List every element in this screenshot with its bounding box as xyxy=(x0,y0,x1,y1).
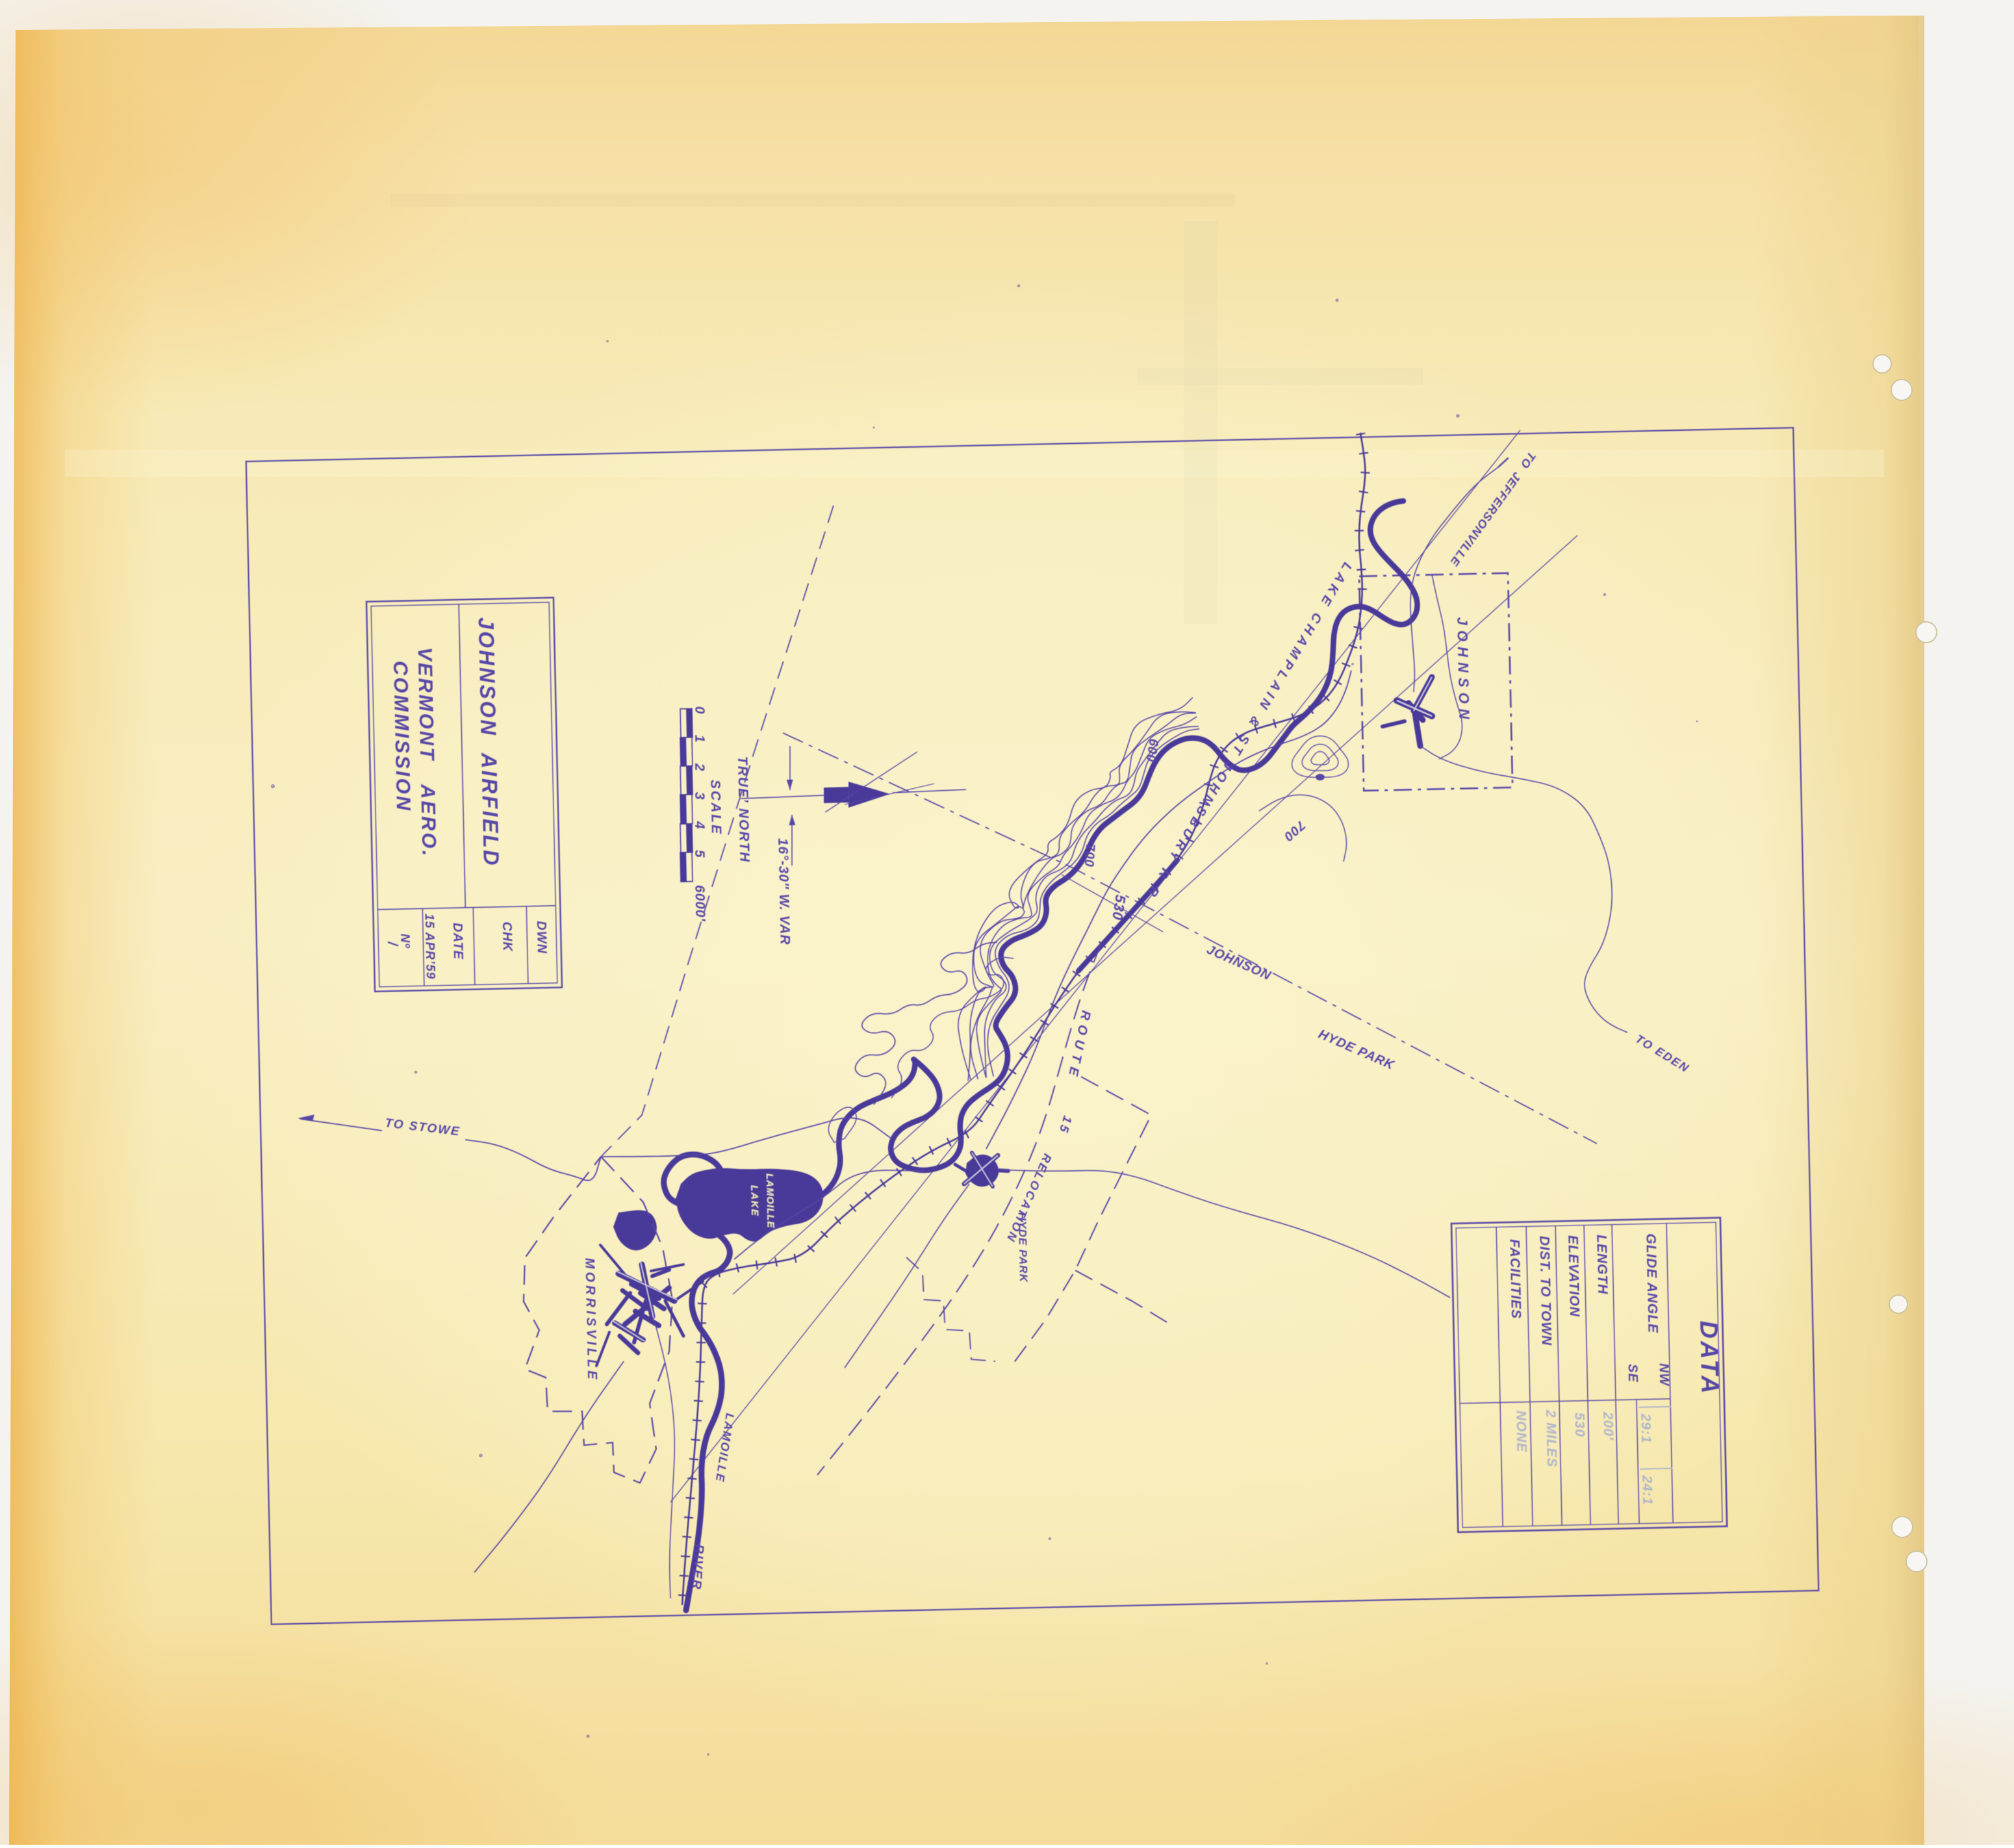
svg-text:GLIDE ANGLE: GLIDE ANGLE xyxy=(1643,1233,1660,1333)
svg-text:SCALE: SCALE xyxy=(707,780,724,836)
svg-text:DIST. TO TOWN: DIST. TO TOWN xyxy=(1536,1236,1554,1346)
svg-text:SE: SE xyxy=(1625,1364,1640,1383)
svg-text:2: 2 xyxy=(692,763,707,771)
svg-text:FACILITIES: FACILITIES xyxy=(1507,1239,1524,1320)
svg-text:24:1: 24:1 xyxy=(1639,1474,1655,1506)
svg-text:6000′: 6000′ xyxy=(692,885,707,922)
svg-text:DATA: DATA xyxy=(1694,1320,1724,1396)
svg-text:15 APR’59: 15 APR’59 xyxy=(422,914,437,980)
svg-text:NW: NW xyxy=(1657,1363,1672,1387)
svg-text:530: 530 xyxy=(1572,1413,1587,1438)
svg-text:VERMONT AERO.: VERMONT AERO. xyxy=(414,647,441,858)
svg-text:16°-30″ W. VAR: 16°-30″ W. VAR xyxy=(775,838,793,945)
svg-text:JOHNSON: JOHNSON xyxy=(1454,617,1473,725)
svg-text:5: 5 xyxy=(692,850,707,858)
svg-text:2 MILES: 2 MILES xyxy=(1543,1409,1559,1467)
svg-text:LENGTH: LENGTH xyxy=(1594,1235,1610,1295)
svg-text:COMMISSION: COMMISSION xyxy=(389,660,415,812)
svg-text:700: 700 xyxy=(1082,843,1097,868)
svg-text:TRUE’ NORTH: TRUE’ NORTH xyxy=(735,756,752,864)
svg-text:CHK: CHK xyxy=(500,921,515,952)
svg-text:RIVER: RIVER xyxy=(689,1544,706,1591)
svg-text:200′: 200′ xyxy=(1600,1411,1616,1441)
svg-text:1: 1 xyxy=(692,735,707,743)
svg-text:ELEVATION: ELEVATION xyxy=(1565,1235,1582,1318)
svg-text:0: 0 xyxy=(692,706,707,714)
svg-text:DATE: DATE xyxy=(450,923,465,960)
svg-text:LAMOILLE: LAMOILLE xyxy=(764,1174,776,1229)
svg-text:29:1: 29:1 xyxy=(1638,1413,1653,1444)
svg-text:DWN: DWN xyxy=(534,921,549,954)
svg-text:4: 4 xyxy=(692,821,707,829)
svg-text:NONE: NONE xyxy=(1513,1410,1529,1452)
svg-text:3: 3 xyxy=(692,792,707,800)
svg-text:LAKE: LAKE xyxy=(748,1185,760,1217)
